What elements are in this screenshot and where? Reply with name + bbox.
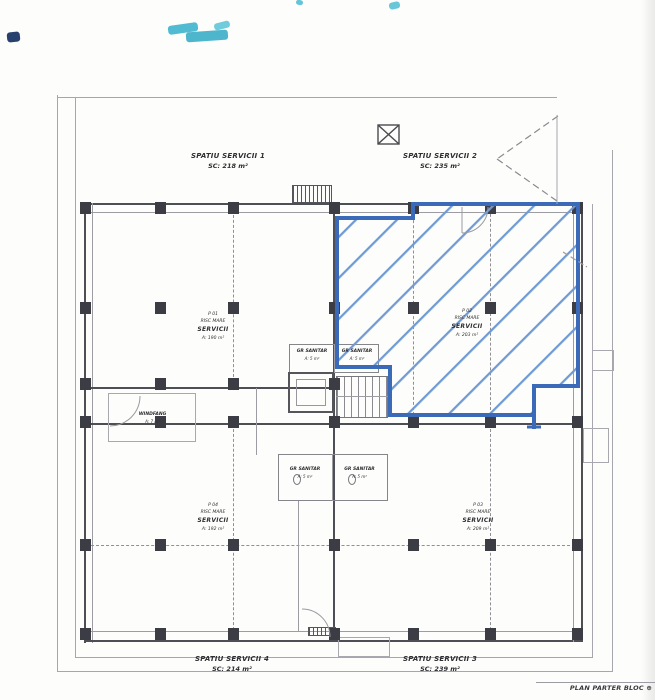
space-name: SPATIU SERVICII 1 — [158, 152, 298, 160]
room-label-p02: P 02 RISC MARE SERVICII A: 203 m² — [425, 308, 509, 339]
room-label-p04: P 04 RISC MARE SERVICII A: 192 m² — [171, 502, 255, 533]
room-code: P 04 — [171, 502, 255, 509]
plan-title-symbol: ⊕ — [646, 684, 652, 692]
room-area: A: 192 m² — [171, 526, 255, 533]
floor-plan-page: SPATIU SERVICII 1 SC: 218 m² SPATIU SERV… — [0, 0, 655, 700]
space-area: SC: 214 m² — [162, 665, 302, 673]
room-risc: RISC MARE — [425, 315, 509, 322]
sanitar-area: A: 5 m² — [280, 474, 330, 480]
space-area: SC: 235 m² — [370, 162, 510, 170]
room-risc: RISC MARE — [171, 509, 255, 516]
space-area: SC: 239 m² — [370, 665, 510, 673]
room-risc: RISC MARE — [171, 318, 255, 325]
sanitar-label-lower-right: GR SANITAR A: 5 m² — [334, 467, 385, 480]
crossed-box-symbol — [378, 125, 399, 144]
windfang-label: WINDFANG A: 7 m² — [125, 412, 180, 425]
titleblock-rule — [536, 682, 655, 683]
sanitar-label-upper-right: GR SANITAR A: 5 m² — [336, 349, 378, 362]
sanitar-name: GR SANITAR — [291, 349, 333, 356]
room-function: SERVICII — [436, 516, 520, 526]
space-name: SPATIU SERVICII 4 — [162, 655, 302, 663]
sanitar-area: A: 5 m² — [334, 474, 385, 480]
sanitar-area: A: 5 m² — [291, 356, 333, 362]
room-risc: RISC MARE — [436, 509, 520, 516]
sanitar-name: GR SANITAR — [334, 467, 385, 474]
sanitar-label-lower-left: GR SANITAR A: 5 m² — [280, 467, 330, 480]
sanitar-label-upper-left: GR SANITAR A: 5 m² — [291, 349, 333, 362]
sanitar-name: GR SANITAR — [280, 467, 330, 474]
room-function: SERVICII — [171, 325, 255, 335]
room-label-p03: P 03 RISC MARE SERVICII A: 209 m² — [436, 502, 520, 533]
room-code: P 03 — [436, 502, 520, 509]
space-label-spatiu-1: SPATIU SERVICII 1 SC: 218 m² — [158, 152, 298, 170]
room-label-p01: P 01 RISC MARE SERVICII A: 190 m² — [171, 311, 255, 342]
plan-title-text: PLAN PARTER BLOC — [570, 684, 644, 692]
sanitar-area: A: 5 m² — [336, 356, 378, 362]
room-area: A: 203 m² — [425, 332, 509, 339]
sanitar-name: GR SANITAR — [336, 349, 378, 356]
space-name: SPATIU SERVICII 3 — [370, 655, 510, 663]
space-label-spatiu-4: SPATIU SERVICII 4 SC: 214 m² — [162, 655, 302, 673]
room-function: SERVICII — [425, 322, 509, 332]
space-name: SPATIU SERVICII 2 — [370, 152, 510, 160]
room-area: A: 209 m² — [436, 526, 520, 533]
plan-title: PLAN PARTER BLOC ⊕ — [538, 684, 652, 692]
room-area: A: 190 m² — [171, 335, 255, 342]
space-area: SC: 218 m² — [158, 162, 298, 170]
room-code: P 02 — [425, 308, 509, 315]
space-label-spatiu-2: SPATIU SERVICII 2 SC: 235 m² — [370, 152, 510, 170]
room-code: P 01 — [171, 311, 255, 318]
windfang-area: A: 7 m² — [125, 419, 180, 425]
room-function: SERVICII — [171, 516, 255, 526]
windfang-name: WINDFANG — [125, 412, 180, 419]
space-label-spatiu-3: SPATIU SERVICII 3 SC: 239 m² — [370, 655, 510, 673]
